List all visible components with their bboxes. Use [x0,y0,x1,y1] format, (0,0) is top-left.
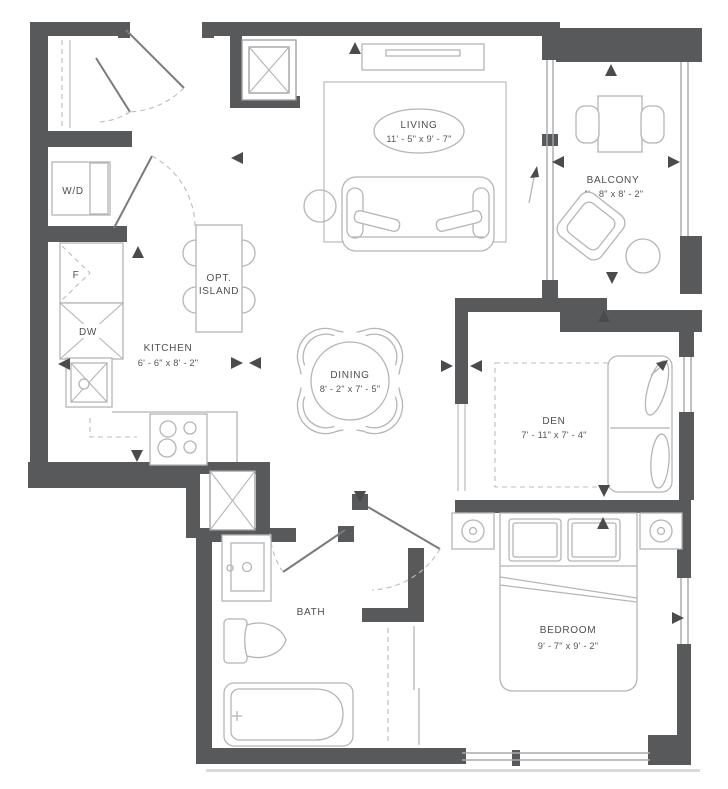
balcony-chair-right [641,106,664,143]
kitchen-dims: 6' - 6" x 8' - 2" [138,358,199,368]
den-sofa [608,356,673,492]
balcony-slider-window [547,60,553,280]
side-table [304,190,336,222]
balcony-chair-left [576,106,599,143]
den-half-wall [458,404,465,491]
dining-table [311,342,389,420]
dim-arrow-left [58,358,70,370]
counter-hidden-line [90,418,137,437]
den: DEN 7' - 11" x 7' - 4" [458,356,673,492]
kitchen-label: KITCHEN [144,343,193,354]
balcony-table [598,96,642,152]
dim-arrow-left [470,360,482,372]
fridge-label: F [73,270,80,281]
vanity-sink [222,535,271,601]
entry-closet-door [96,58,130,112]
bedroom-side-window [681,578,688,644]
island-label-line1: OPT. [206,273,231,284]
bathtub [224,683,353,746]
balcony: BALCONY 4' - 8" x 8' - 2" [553,96,664,273]
island-stool [242,240,255,266]
dim-arrow-right [672,612,684,624]
dishwasher-label: DW [79,327,97,338]
bedroom-label: BEDROOM [540,625,597,636]
dining-area: DINING 8' - 2" x 7' - 5" [284,315,415,446]
fridge: F [60,243,123,303]
balcony-round-table [626,239,660,273]
dim-arrow-left [552,156,564,168]
bedroom-door [368,507,440,549]
bed [500,513,637,691]
dim-arrow-up [132,246,144,258]
shaft-box-kitchen [210,471,255,530]
floor-plan-drawing: W/D LIVING 11' - 5" x 9' - 7" BALCONY [0,0,728,789]
bedroom-dims: 9' - 7" x 9' - 2" [538,641,599,651]
dim-arrow-down [598,485,610,497]
dining-dims: 8' - 2" x 7' - 5" [320,384,381,394]
kitchen-sink [66,358,112,407]
dim-arrow-left [249,357,261,369]
island-label-line2: ISLAND [199,286,239,297]
tv-console [362,44,484,70]
ground-shadow-line [206,769,700,772]
island-stool [183,240,196,266]
living-label: LIVING [401,120,438,131]
kitchen-island: OPT. ISLAND [183,225,255,332]
dim-arrow-right [668,156,680,168]
washer-dryer-label: W/D [62,186,84,197]
bath-label: BATH [297,607,326,618]
dim-arrow-up [349,42,361,54]
floor-plan: W/D LIVING 11' - 5" x 9' - 7" BALCONY [0,0,728,789]
washer-dryer: W/D [52,156,195,228]
lounge-chair [553,188,629,264]
entry-door [126,30,184,88]
dim-arrow-down [131,450,143,462]
living-dims: 11' - 5" x 9' - 7" [386,134,451,144]
sofa [342,177,494,251]
living-room: LIVING 11' - 5" x 9' - 7" [304,44,539,251]
dishwasher: DW [60,303,123,359]
balcony-label: BALCONY [587,175,640,186]
hall-closet [388,626,419,745]
closet-sliding-doors [414,626,419,745]
dim-arrow-up [605,64,617,76]
dining-label: DINING [330,370,369,381]
toilet [224,619,286,663]
living-label-oval [374,109,464,153]
nightstand-left [452,513,494,549]
dim-arrow-right [231,357,243,369]
nightstand-right [640,513,682,549]
dim-arrow-right [441,360,453,372]
dim-arrow-down [606,272,618,284]
balcony-railing [681,62,688,236]
den-dims: 7' - 11" x 7' - 4" [521,430,586,440]
den-label: DEN [542,416,565,427]
island-stool [183,287,196,313]
bedroom-bottom-window [462,753,650,760]
dim-arrow-left [231,152,243,164]
bathroom: BATH [222,530,353,746]
den-window [684,357,691,412]
island-stool [242,287,255,313]
shaft-box-top [242,40,296,100]
cooktop [150,414,207,465]
wd-door [114,156,152,228]
entry [62,30,184,128]
